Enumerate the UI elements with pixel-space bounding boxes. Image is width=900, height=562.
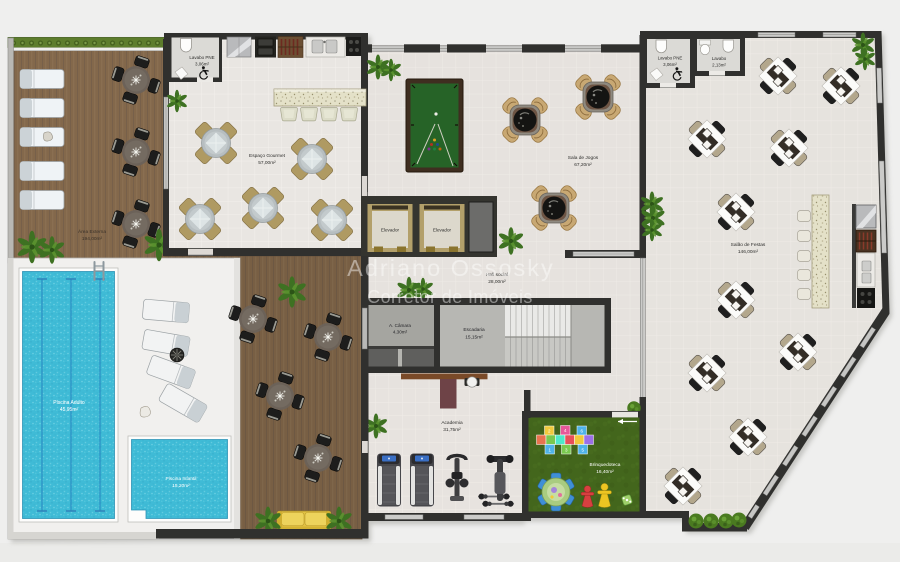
svg-text:Piscina Adulto: Piscina Adulto — [53, 400, 85, 406]
svg-text:3,06m²: 3,06m² — [663, 62, 677, 67]
svg-text:15,15m²: 15,15m² — [465, 335, 483, 341]
svg-text:31,75m²: 31,75m² — [443, 427, 461, 433]
svg-text:3,06m²: 3,06m² — [195, 62, 210, 67]
svg-text:Academia: Academia — [441, 420, 463, 426]
svg-text:Adriano Ossosky: Adriano Ossosky — [347, 255, 555, 281]
svg-text:2,13m²: 2,13m² — [712, 63, 726, 68]
svg-text:67,20m²: 67,20m² — [574, 162, 592, 168]
svg-text:Lavabo: Lavabo — [712, 56, 727, 61]
svg-text:Elevador: Elevador — [433, 228, 452, 233]
svg-text:16,40m²: 16,40m² — [596, 469, 614, 475]
svg-text:57,00m²: 57,00m² — [258, 160, 276, 166]
svg-text:146,00m²: 146,00m² — [738, 249, 759, 255]
svg-text:Sala de Jogos: Sala de Jogos — [568, 155, 599, 161]
svg-text:15,20m²: 15,20m² — [172, 483, 190, 489]
svg-text:Salão de Festas: Salão de Festas — [731, 242, 766, 248]
svg-text:Lavabo PNE: Lavabo PNE — [658, 56, 683, 61]
svg-text:Área Externa: Área Externa — [78, 228, 106, 235]
svg-text:Piscina Infantil: Piscina Infantil — [166, 476, 197, 482]
svg-text:4,30m²: 4,30m² — [393, 330, 408, 335]
svg-text:Elevador: Elevador — [381, 228, 400, 233]
svg-text:Escadaria: Escadaria — [463, 327, 485, 333]
svg-text:Espaço Gourmet: Espaço Gourmet — [249, 153, 286, 159]
svg-text:45,95m²: 45,95m² — [60, 407, 79, 413]
svg-text:Brinquedoteca: Brinquedoteca — [590, 462, 621, 468]
svg-text:194,00m²: 194,00m² — [82, 236, 103, 242]
svg-text:Lavabo PNE: Lavabo PNE — [189, 55, 214, 60]
svg-text:A. Câmara: A. Câmara — [389, 323, 411, 328]
svg-text:Corretor de Imóveis: Corretor de Imóveis — [367, 287, 533, 307]
